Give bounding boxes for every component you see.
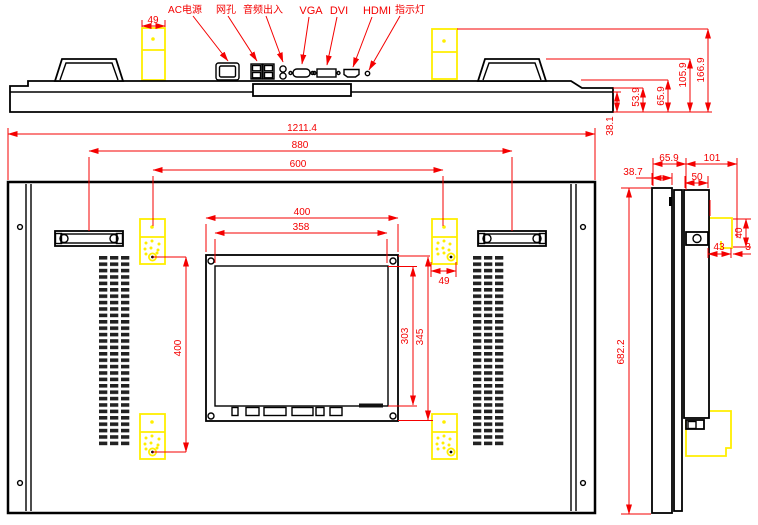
side-panel-notch <box>669 197 672 206</box>
dim-overall-width: 1211.4 <box>287 123 317 134</box>
dim-hook-width: 43 <box>713 242 725 253</box>
leader-hdmi <box>353 17 372 67</box>
dvi-port <box>313 69 340 77</box>
handle-right <box>478 59 546 81</box>
rear-view: 1211.4 880 600 400 358 49 303 345 400 68… <box>8 123 651 514</box>
dim-box-height: 345 <box>415 328 426 345</box>
leader-audio <box>266 16 283 62</box>
dim-side-panel-depth: 38.7 <box>623 167 643 178</box>
dim-handle-spacing: 880 <box>292 140 309 151</box>
leader-lan <box>228 16 257 61</box>
top-view: AC电源 网孔 音频出入 VGA DVI HDMI 指示灯 49 38.1 53… <box>10 3 712 136</box>
leader-vga <box>302 17 309 64</box>
dim-handle-depth: 105.9 <box>678 62 689 87</box>
hanging-plate-right <box>478 231 546 246</box>
dim-bezel-depth: 65.9 <box>659 153 679 164</box>
vent-grid-right <box>473 256 506 447</box>
dim-box-inner-height: 303 <box>400 327 411 344</box>
dim-mount-width: 600 <box>290 159 307 170</box>
handle-left <box>55 59 123 81</box>
side-hook-fitting-bottom <box>686 420 704 429</box>
vent-grid-left <box>97 256 130 447</box>
dim-box-depth: 50 <box>691 172 703 183</box>
dim-overall-height: 682.2 <box>616 339 627 364</box>
hanging-plate-left <box>55 231 123 246</box>
dim-body-depth: 65.9 <box>656 86 667 106</box>
electronics-box <box>206 255 398 421</box>
hdmi-port <box>344 70 359 78</box>
leader-indicator <box>369 16 400 70</box>
label-dvi: DVI <box>330 5 348 17</box>
side-mid-strip <box>674 190 682 511</box>
top-mount-bracket-left <box>142 28 165 80</box>
audio-jacks <box>280 66 286 79</box>
ext-overall-width <box>8 128 595 180</box>
side-view: 65.9 101 38.7 50 40 43 3 <box>623 153 751 513</box>
dim-plate-width: 49 <box>438 276 450 287</box>
ac-power-inlet <box>216 63 239 80</box>
indicator-led <box>365 71 369 75</box>
label-lan: 网孔 <box>216 4 236 16</box>
dim-bracket-width: 49 <box>147 15 159 26</box>
leader-ac-power <box>193 16 228 61</box>
label-indicator: 指示灯 <box>395 3 425 16</box>
vesa-plate-top-right <box>432 219 457 264</box>
label-vga: VGA <box>299 5 323 17</box>
drawing-svg: AC电源 网孔 音频出入 VGA DVI HDMI 指示灯 49 38.1 53… <box>0 0 758 525</box>
dim-box-width: 400 <box>294 207 311 218</box>
label-audio: 音频出入 <box>243 3 283 16</box>
side-front-panel <box>652 188 672 513</box>
side-back-box <box>684 190 709 418</box>
label-ac-power: AC电源 <box>168 3 202 16</box>
dim-box-inner-width: 358 <box>293 222 310 233</box>
vesa-plate-bottom-right <box>432 414 457 459</box>
label-hdmi: HDMI <box>363 5 391 17</box>
leader-dvi <box>327 17 337 65</box>
side-hook-fitting-top <box>686 232 708 245</box>
engineering-drawing: AC电源 网孔 音频出入 VGA DVI HDMI 指示灯 49 38.1 53… <box>0 0 758 525</box>
dim-overall-depth: 166.9 <box>696 57 707 82</box>
lan-ports <box>251 64 274 79</box>
top-mount-bracket-right <box>432 29 457 79</box>
vga-port <box>289 69 314 77</box>
dim-mount-height: 400 <box>173 339 184 356</box>
dim-hook-height: 40 <box>734 227 745 239</box>
dim-hook-lip: 3 <box>745 242 751 253</box>
dim-step-depth: 53.9 <box>631 87 642 107</box>
dim-panel-depth: 38.1 <box>605 116 616 136</box>
connector-recess <box>253 84 351 96</box>
dim-mount-depth: 101 <box>704 153 721 164</box>
